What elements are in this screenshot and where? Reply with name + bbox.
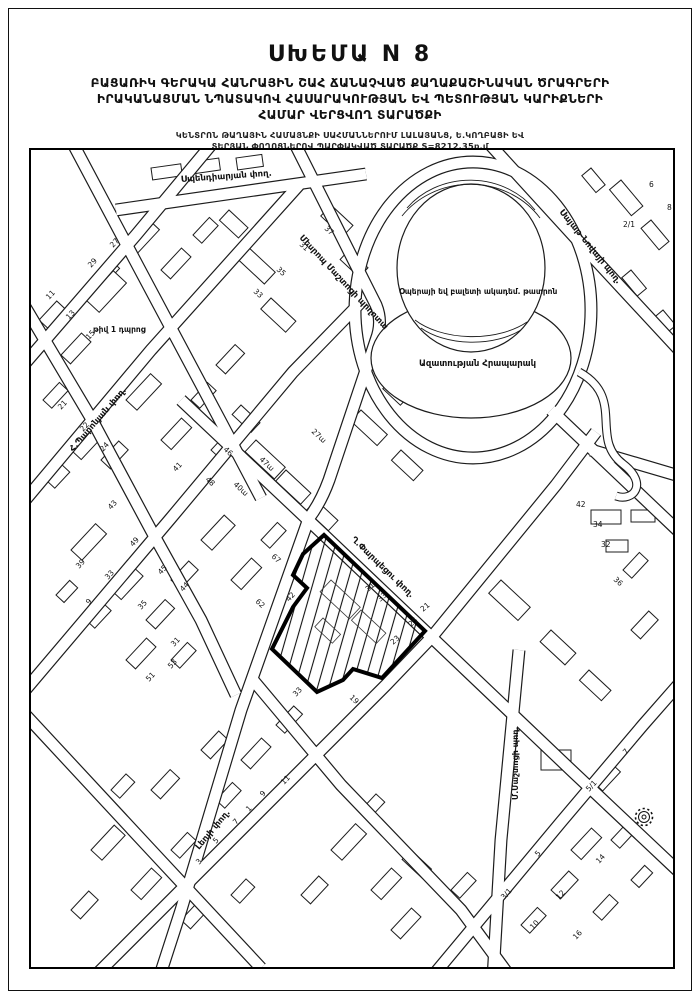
page-title: ՍԽԵՄԱ N 8 (0, 42, 700, 67)
svg-text:35: 35 (136, 598, 149, 611)
svg-text:42: 42 (576, 500, 586, 509)
city-map: 3137353329271113152122243949454433353195… (29, 148, 675, 969)
document-subtitle: ԲԱՑԱՌԻԿ ԳԵՐԱԿԱ ՀԱՆՐԱՅԻՆ ՇԱՀ ՃԱՆԱՉՎԱԾ ՔԱՂ… (0, 75, 700, 123)
opera-complex (397, 180, 545, 352)
svg-text:39: 39 (74, 557, 87, 570)
svg-text:21: 21 (419, 600, 432, 613)
svg-text:43: 43 (106, 498, 119, 511)
svg-text:36: 36 (612, 575, 625, 588)
gear-symbol-icon (636, 809, 653, 826)
svg-text:35: 35 (275, 265, 288, 278)
svg-text:11: 11 (44, 288, 57, 301)
svg-text:Մ.Մաշտոցի պող.: Մ.Մաշտոցի պող. (511, 727, 520, 800)
subtitle-line-1: ԲԱՑԱՌԻԿ ԳԵՐԱԿԱ ՀԱՆՐԱՅԻՆ ՇԱՀ ՃԱՆԱՉՎԱԾ ՔԱՂ… (0, 75, 700, 91)
svg-text:6: 6 (649, 180, 654, 189)
svg-text:33: 33 (291, 685, 304, 698)
svg-text:Ազատության Հրապարակ: Ազատության Հրապարակ (419, 359, 536, 369)
document-header: ՍԽԵՄԱ N 8 ԲԱՑԱՌԻԿ ԳԵՐԱԿԱ ՀԱՆՐԱՅԻՆ ՇԱՀ ՃԱ… (0, 0, 700, 151)
subtitle-line-3: ՀԱՄԱՐ ՎԵՐՑՎՈՂ ՏԱՐԱԾՔԻ (0, 107, 700, 123)
svg-text:32: 32 (601, 540, 611, 549)
svg-text:33: 33 (252, 287, 265, 300)
map-canvas: 3137353329271113152122243949454433353195… (31, 150, 673, 967)
svg-text:8: 8 (667, 203, 672, 212)
svg-text:16: 16 (571, 928, 584, 941)
svg-text:51: 51 (144, 670, 157, 683)
svg-text:62: 62 (254, 597, 267, 610)
svg-text:34: 34 (593, 520, 603, 529)
svg-text:թիվ 1 դպրոց: թիվ 1 դպրոց (93, 325, 146, 334)
svg-text:41: 41 (171, 460, 184, 473)
svg-text:27ա: 27ա (310, 427, 328, 445)
svg-text:2/1: 2/1 (623, 220, 635, 229)
subtitle-line-2: ԻՐԱԿԱՆԱՑՄԱՆ ՆՊԱՏԱԿՈՎ ՀԱՍԱՐԱԿՈՒԹՅԱՆ ԵՎ ՊԵ… (0, 91, 700, 107)
svg-text:31: 31 (169, 635, 182, 648)
svg-text:14: 14 (594, 852, 607, 865)
note-line-1: ԿԵՆՏՐՈՆ ԹԱՂԱՅԻՆ ՀԱՄԱՅՆՔԻ ՍԱՀՄԱՆՆԵՐՈՒՄ ԼԱ… (0, 130, 700, 141)
svg-text:67: 67 (270, 552, 283, 565)
svg-text:Օպերայի եվ բալետի ակադեմ. թատր: Օպերայի եվ բալետի ակադեմ. թատրոն (399, 287, 557, 296)
scheme-document-page: ՍԽԵՄԱ N 8 ԲԱՑԱՌԻԿ ԳԵՐԱԿԱ ՀԱՆՐԱՅԻՆ ՇԱՀ ՃԱ… (0, 0, 700, 999)
svg-text:29: 29 (86, 256, 99, 269)
